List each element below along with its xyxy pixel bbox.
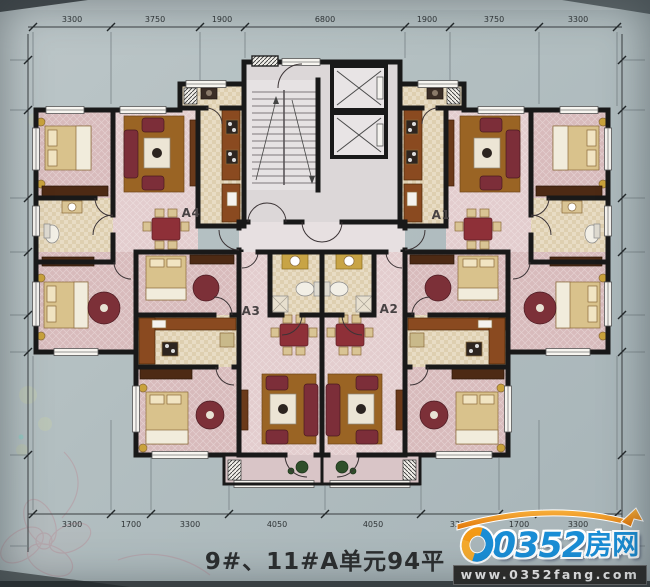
elevator-shaft — [332, 66, 386, 110]
stairwell — [246, 80, 318, 190]
dim-label: 3300 — [62, 520, 82, 529]
floorplan-photo: 3300 3750 1900 6800 1900 3750 3300 3300 … — [0, 0, 650, 587]
dimension-right — [618, 34, 645, 552]
dim-label: 3750 — [145, 15, 165, 24]
elevator-door — [377, 77, 383, 99]
shaft-vent — [252, 56, 278, 66]
logo-website: www.0352fang.com — [453, 565, 647, 585]
dim-label: 3300 — [568, 15, 588, 24]
core — [244, 56, 400, 242]
elevator-shaft — [332, 113, 386, 157]
elevator-door — [377, 124, 383, 146]
floor-plan-drawing: 3300 3750 1900 6800 1900 3750 3300 3300 … — [0, 0, 650, 587]
unit-label-a1: A1 — [432, 208, 451, 222]
dim-label: 4050 — [363, 520, 383, 529]
site-logo: 0352房网 www.0352fang.com — [453, 507, 647, 585]
unit-label-a3: A3 — [242, 304, 261, 318]
flower-watermark — [0, 452, 210, 583]
unit-a4-wing — [33, 81, 245, 459]
dim-label: 4050 — [267, 520, 287, 529]
unit-label-a2: A2 — [380, 302, 399, 316]
plan-caption: 9#、11#A单元94平 — [205, 549, 445, 575]
dimension-left — [10, 34, 32, 552]
entry-hall — [239, 222, 405, 252]
logo-suffix: 房网 — [585, 530, 639, 561]
logo-number: 0352 — [492, 526, 585, 566]
dim-label: 1700 — [121, 520, 141, 529]
logo-brand: 0352房网 — [453, 528, 647, 567]
dim-label: 1900 — [417, 15, 437, 24]
dim-label: 6800 — [315, 15, 335, 24]
roof-arrow-icon — [621, 508, 643, 527]
dim-label: 3750 — [484, 15, 504, 24]
dim-label: 3300 — [62, 15, 82, 24]
dim-label: 3300 — [180, 520, 200, 529]
dim-label: 1900 — [212, 15, 232, 24]
unit-label-a4: A4 — [182, 206, 201, 220]
